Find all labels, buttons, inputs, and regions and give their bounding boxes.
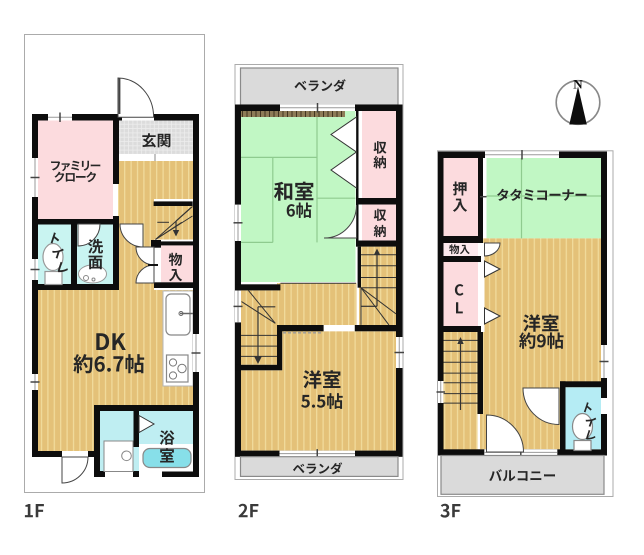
svg-text:N: N [573, 77, 583, 92]
